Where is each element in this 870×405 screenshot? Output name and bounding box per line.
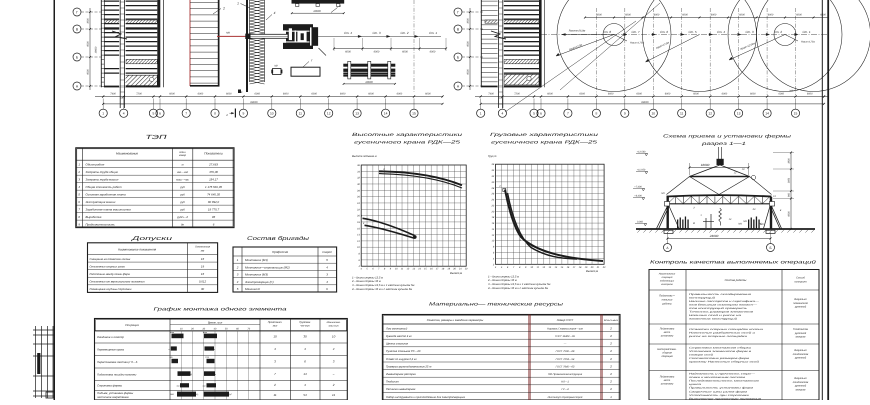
svg-text:Последовательность монтажного: Последовательность монтажного — [689, 380, 760, 383]
svg-text:Затраты труда машин: Затраты труда машин — [86, 177, 119, 181]
svg-text:Груз,т: Груз,т — [488, 155, 497, 158]
svg-text:дн: дн — [181, 223, 184, 226]
svg-text:Строповка фермы: Строповка фермы — [97, 383, 122, 387]
svg-text:тов конструкций проверить: тов конструкций проверить — [689, 307, 748, 310]
svg-text:7: 7 — [567, 112, 569, 116]
svg-text:12: 12 — [327, 112, 331, 116]
svg-text:Размещение глубины строповки: Размещение глубины строповки — [90, 288, 132, 291]
svg-text:10: 10 — [332, 335, 336, 339]
svg-text:3—длина стрелы 12,5 м и с жест: 3—длина стрелы 12,5 м и с жестким гусько… — [352, 284, 415, 287]
svg-text:12: 12 — [708, 112, 712, 116]
svg-text:Ст. 2: Ст. 2 — [401, 31, 409, 35]
svg-text:10600: 10600 — [313, 10, 321, 13]
svg-text:Установка элементов ферм в: Установка элементов ферм в — [689, 350, 752, 353]
svg-text:10: 10 — [273, 335, 277, 339]
svg-text:Основная заработная плата: Основная заработная плата — [86, 192, 126, 196]
svg-text:18000: 18000 — [95, 46, 98, 53]
svg-text:рулеткой: рулеткой — [794, 385, 807, 388]
svg-text:Грузовые характеристики: Грузовые характеристики — [490, 132, 599, 137]
svg-text:Правильность установки ферм: Правильность установки ферм — [689, 387, 754, 390]
svg-text:ТЭП: ТЭП — [146, 134, 168, 141]
svg-text:6600: 6600 — [788, 211, 791, 217]
svg-text:2: 2 — [609, 342, 612, 346]
svg-text:3600: 3600 — [467, 18, 470, 24]
svg-text:9: 9 — [624, 112, 626, 116]
svg-text:6000: 6000 — [665, 93, 671, 96]
svg-text:Выработка: Выработка — [86, 215, 102, 219]
svg-text:Институт Оргтрансстрой: Институт Оргтрансстрой — [548, 396, 583, 399]
svg-text:54: 54 — [303, 393, 307, 397]
svg-text:створе осей: створе осей — [689, 354, 714, 357]
svg-text:Rмин=4,75м: Rмин=4,75м — [630, 42, 644, 45]
svg-text:10600: 10600 — [365, 81, 373, 84]
svg-text:—: — — [563, 343, 567, 346]
svg-text:22: 22 — [464, 268, 468, 271]
svg-text:НО: НО — [759, 223, 763, 226]
svg-text:конструкций: конструкций — [689, 296, 716, 299]
svg-text:ПМ Промжелезконструкция: ПМ Промжелезконструкция — [548, 373, 583, 376]
svg-text:4: 4 — [501, 112, 503, 116]
svg-text:2: 2 — [222, 7, 225, 11]
svg-text:5: 5 — [152, 112, 154, 116]
svg-text:Электросварщик (С): Электросварщик (С) — [245, 280, 274, 284]
svg-text:руб: руб — [179, 201, 185, 204]
svg-text:Монтажник (М3): Монтажник (М3) — [245, 273, 268, 277]
svg-text:Наличие осей и рисок на: Наличие осей и рисок на — [689, 314, 742, 317]
svg-text:Материально— технические ресу: Материально— технические ресурсы — [429, 302, 564, 308]
svg-text:установки: установки — [660, 383, 674, 386]
svg-text:метром: метром — [796, 336, 806, 339]
svg-text:18000: 18000 — [701, 163, 710, 167]
svg-text:элементах конструкций: элементах конструкций — [689, 318, 738, 321]
svg-text:Строповка монтажная сборки: Строповка монтажная сборки — [689, 347, 752, 350]
svg-text:6000: 6000 — [283, 93, 289, 96]
svg-text:74 640,35: 74 640,35 — [207, 192, 220, 196]
svg-text:Визуально: Визуально — [794, 349, 807, 352]
svg-text:800: 800 — [788, 192, 791, 197]
svg-text:6000: 6000 — [430, 51, 436, 54]
svg-text:маш: маш — [170, 331, 174, 334]
svg-text:Затраты труда общие: Затраты труда общие — [86, 170, 119, 174]
svg-text:Нанесение разбивочных осей и: Нанесение разбивочных осей и — [689, 332, 756, 335]
svg-text:6000: 6000 — [345, 51, 351, 54]
svg-text:0,000: 0,000 — [637, 221, 644, 224]
svg-text:13: 13 — [355, 112, 359, 116]
svg-text:6000: 6000 — [768, 14, 774, 17]
svg-text:цикла: цикла — [689, 383, 702, 386]
svg-text:8: 8 — [214, 112, 216, 116]
svg-text:28: 28 — [356, 189, 360, 192]
svg-text:Ст. 8: Ст. 8 — [603, 30, 611, 34]
svg-text:мин: мин — [273, 325, 278, 328]
svg-text:18 770,7: 18 770,7 — [208, 207, 220, 211]
svg-text:2: 2 — [332, 383, 335, 387]
svg-text:–: – — [332, 372, 335, 376]
svg-text:6000: 6000 — [425, 93, 431, 96]
svg-text:1—длина стрелы 12,5 м: 1—длина стрелы 12,5 м — [352, 276, 383, 279]
svg-text:14: 14 — [303, 372, 307, 376]
svg-text:Расстояния между осями ферм: Расстояния между осями ферм — [90, 273, 131, 276]
svg-text:Вылет,м: Вылет,м — [586, 269, 598, 273]
svg-text:Трудоемк.: Трудоемк. — [299, 321, 311, 324]
svg-text:6000: 6000 — [711, 14, 717, 17]
svg-text:метром: метром — [796, 388, 806, 391]
svg-text:2: 2 — [609, 326, 612, 330]
svg-text:Монтажник—стропальщик (М2): Монтажник—стропальщик (М2) — [245, 265, 290, 269]
svg-text:20: 20 — [356, 215, 360, 218]
svg-text:6: 6 — [540, 112, 542, 116]
svg-text:22: 22 — [356, 208, 360, 211]
svg-text:3650: 3650 — [788, 177, 791, 183]
svg-text:измер: измер — [179, 154, 187, 157]
svg-text:руб: руб — [179, 208, 185, 211]
svg-text:24: 24 — [356, 202, 360, 205]
svg-text:83200: 83200 — [250, 101, 258, 104]
svg-text:Перестановка лестниц ГП—5: Перестановка лестниц ГП—5 — [97, 360, 138, 364]
svg-text:контроля: контроля — [795, 281, 808, 284]
svg-text:В: В — [693, 222, 695, 225]
svg-text:проекту Нанесение сборных осе: проекту Нанесение сборных осей — [689, 361, 760, 364]
svg-text:контролю: контролю — [661, 283, 673, 286]
svg-text:5: 5 — [533, 112, 535, 116]
svg-text:гусеничного крана РДК—25: гусеничного крана РДК—25 — [491, 140, 598, 145]
svg-text:9: 9 — [242, 112, 244, 116]
svg-text:6000: 6000 — [693, 93, 699, 96]
svg-text:8: 8 — [595, 112, 597, 116]
svg-text:6000: 6000 — [87, 69, 90, 75]
svg-text:маш: маш — [203, 331, 207, 334]
svg-text:7: 7 — [185, 112, 187, 116]
svg-text:рисок на опорные площадки: рисок на опорные площадки — [687, 335, 748, 338]
svg-text:ГОСТ 7945—63: ГОСТ 7945—63 — [556, 365, 575, 368]
svg-text:95: 95 — [212, 215, 216, 219]
svg-text:Подготовь—: Подготовь— — [659, 295, 675, 298]
svg-text:Оснастка, размеры и заводск: Оснастка, размеры и заводские параметры — [427, 319, 484, 322]
svg-text:1: 1 — [237, 2, 239, 6]
svg-text:маш·мин: маш·мин — [329, 325, 340, 328]
svg-text:Инвентарная распорка: Инвентарная распорка — [386, 373, 416, 376]
svg-text:теодолитом: теодолитом — [793, 381, 809, 384]
svg-text:6000: 6000 — [397, 93, 403, 96]
svg-text:2—длина стрелы 35 м: 2—длина стрелы 35 м — [351, 280, 381, 283]
svg-text:Наименование: Наименование — [116, 152, 138, 156]
svg-text:6000: 6000 — [636, 93, 642, 96]
svg-text:м: м — [182, 164, 184, 167]
svg-text:Теодолит: Теодолит — [386, 381, 399, 384]
svg-text:6000: 6000 — [579, 93, 585, 96]
svg-text:2: 2 — [273, 383, 276, 387]
svg-text:6000: 6000 — [255, 93, 261, 96]
svg-text:6000: 6000 — [739, 14, 745, 17]
svg-text:Кол-во: Кол-во — [604, 319, 619, 322]
svg-text:Наименование показателя: Наименование показателя — [118, 248, 157, 252]
svg-text:График монтажа одного элемента: График монтажа одного элемента — [154, 307, 288, 313]
svg-text:+11,050: +11,050 — [637, 169, 646, 172]
svg-text:19: 19 — [201, 264, 205, 268]
svg-text:Набор инструмента и приспособл: Набор инструмента и приспособления для э… — [386, 396, 465, 399]
svg-text:Правильность складирования: Правильность складирования — [689, 293, 752, 296]
svg-text:Разряд: Разряд — [322, 250, 332, 254]
svg-text:Продолжительность: Продолжительность — [86, 222, 116, 226]
svg-text:6000: 6000 — [311, 93, 317, 96]
svg-text:Состав работы: Состав работы — [725, 278, 747, 282]
svg-text:6000: 6000 — [625, 14, 631, 17]
svg-text:1: 1 — [480, 112, 482, 116]
svg-text:установки: установки — [660, 335, 674, 338]
svg-text:Визуально: Визуально — [794, 298, 807, 301]
svg-text:3800: 3800 — [788, 158, 791, 164]
svg-text:Кувалда массой 4 кг: Кувалда массой 4 кг — [386, 335, 412, 338]
svg-text:2: 2 — [609, 380, 612, 384]
svg-text:М₂: М₂ — [196, 393, 199, 396]
svg-text:рулеткой: рулеткой — [794, 332, 807, 335]
svg-text:Высота подъема м: Высота подъема м — [352, 155, 377, 158]
svg-text:Допуски: Допуски — [130, 236, 172, 242]
svg-text:Точность размеров элементов: Точность размеров элементов — [689, 311, 754, 314]
svg-text:15: 15 — [412, 112, 416, 116]
svg-text:гусеничного крана РДК—25: гусеничного крана РДК—25 — [354, 140, 461, 145]
svg-text:3600: 3600 — [87, 18, 90, 24]
svg-text:154,17: 154,17 — [209, 177, 218, 181]
svg-text:470,08: 470,08 — [209, 170, 218, 174]
svg-text:Общая стоимость работ: Общая стоимость работ — [86, 185, 123, 189]
svg-text:6000: 6000 — [682, 14, 688, 17]
svg-text:2: 2 — [609, 357, 612, 361]
svg-text:6000: 6000 — [820, 14, 826, 17]
svg-text:26: 26 — [356, 196, 360, 199]
svg-text:2: 2 — [77, 170, 80, 174]
svg-text:ГОСТ 7253—54: ГОСТ 7253—54 — [556, 358, 575, 361]
svg-text:Показатели: Показатели — [204, 152, 223, 156]
svg-text:Монтажник (М1): Монтажник (М1) — [245, 258, 268, 262]
svg-text:Отклонения опорных узлов: Отклонения опорных узлов — [90, 265, 126, 268]
svg-text:тов Внешним осмотром элемен—: тов Внешним осмотром элемен— — [689, 303, 758, 306]
svg-text:Контроль качества выполняемых: Контроль качества выполняемых операций — [650, 260, 817, 266]
svg-text:14: 14 — [384, 112, 388, 116]
svg-text:Ст. 5: Ст. 5 — [689, 30, 697, 34]
svg-text:Нормаль Главмосстроя—шт: Нормаль Главмосстроя—шт — [547, 327, 584, 330]
svg-text:2: 2 — [609, 349, 612, 353]
svg-text:1—длина стрелы 12,5 м: 1—длина стрелы 12,5 м — [488, 275, 519, 278]
svg-text:6: 6 — [159, 112, 161, 116]
svg-text:15: 15 — [794, 112, 798, 116]
svg-text:11: 11 — [680, 112, 684, 116]
svg-text:тельные: тельные — [662, 299, 673, 302]
svg-text:Операция: Операция — [125, 323, 139, 327]
svg-text:ГОСТ 7502—69: ГОСТ 7502—69 — [556, 350, 575, 353]
svg-text:2: 2 — [236, 265, 239, 269]
svg-text:Расчалка инвентарная: Расчалка инвентарная — [386, 388, 416, 391]
svg-text:Схема приема и установки фермы: Схема приема и установки фермы — [663, 134, 792, 139]
svg-text:Продолжит.: Продолжит. — [268, 321, 283, 324]
svg-text:7200: 7200 — [514, 93, 520, 96]
svg-text:3—длина стрелы 12,5 м и с жест: 3—длина стрелы 12,5 м и с жестким гусько… — [488, 283, 551, 286]
svg-text:руб/ч—д: руб/ч—д — [176, 216, 188, 219]
svg-text:27,663: 27,663 — [208, 163, 218, 167]
svg-text:рулеткой: рулеткой — [794, 306, 807, 309]
svg-text:Ст. 6: Ст. 6 — [660, 30, 668, 34]
svg-text:4—длина стрелы 35 м и с жестки: 4—длина стрелы 35 м и с жестким гуськом … — [352, 288, 412, 291]
svg-text:чел—час: чел—час — [177, 171, 189, 174]
svg-text:руб: руб — [179, 193, 185, 196]
svg-text:+12,560: +12,560 — [637, 151, 646, 154]
svg-text:Перемещение крана: Перемещение крана — [97, 347, 124, 351]
svg-text:6000: 6000 — [750, 93, 756, 96]
svg-text:6000: 6000 — [87, 41, 90, 47]
svg-text:6000: 6000 — [722, 93, 728, 96]
svg-text:6000: 6000 — [198, 93, 204, 96]
svg-text:НЛ—1: НЛ—1 — [561, 381, 569, 384]
svg-text:ММ: ММ — [170, 393, 174, 396]
svg-text:Соответствие размеров ферм: Соответствие размеров ферм — [689, 357, 750, 360]
svg-text:4: 4 — [123, 112, 125, 116]
svg-text:4—длина стрелы 35 м и с жестки: 4—длина стрелы 35 м и с жестким гуськом … — [488, 287, 548, 290]
svg-text:Время, мин: Время, мин — [208, 321, 223, 324]
svg-text:Б: Б — [769, 246, 771, 250]
svg-text:частичное закрепление: частичное закрепление — [97, 395, 129, 399]
svg-text:Отвес со шнуром 0,2 кг: Отвес со шнуром 0,2 кг — [386, 358, 417, 361]
svg-text:+7,400: +7,400 — [634, 186, 642, 189]
svg-text:6000: 6000 — [374, 51, 380, 54]
svg-text:15: 15 — [201, 257, 205, 261]
svg-text:2: 2 — [609, 334, 612, 338]
svg-text:6000: 6000 — [402, 51, 408, 54]
svg-text:+6,400: +6,400 — [634, 195, 642, 198]
svg-text:14: 14 — [765, 112, 769, 116]
svg-text:Визуально: Визуально — [794, 377, 807, 380]
svg-text:2: 2 — [609, 387, 612, 391]
svg-text:повки к монтажным петлям: повки к монтажным петлям — [689, 376, 746, 379]
svg-text:4: 4 — [274, 11, 276, 15]
svg-text:0,012: 0,012 — [199, 280, 207, 284]
svg-text:7200: 7200 — [136, 93, 142, 96]
svg-text:Объем работ: Объем работ — [86, 163, 105, 167]
svg-text:элементной: элементной — [793, 302, 808, 305]
svg-text:6000: 6000 — [340, 93, 346, 96]
svg-text:Ст. 4: Ст. 4 — [344, 31, 352, 35]
svg-text:1 175 581,35: 1 175 581,35 — [205, 185, 222, 189]
svg-text:Г: Г — [76, 10, 78, 14]
svg-text:Способ: Способ — [796, 277, 805, 280]
svg-text:Ст. 3: Ст. 3 — [373, 31, 381, 35]
svg-text:11: 11 — [273, 393, 276, 397]
svg-text:2—длина стрелы 35 м: 2—длина стрелы 35 м — [487, 279, 517, 282]
svg-text:Устойчивость при строповке: Устойчивость при строповке — [689, 394, 750, 397]
svg-text:Эксплуатация машин: Эксплуатация машин — [86, 200, 116, 204]
svg-text:Отметки опорных площадок колон: Отметки опорных площадок колонн — [689, 328, 764, 331]
svg-text:мм: мм — [201, 250, 205, 253]
svg-text:Состав бригады: Состав бригады — [247, 236, 309, 242]
svg-text:рулеткой: рулеткой — [794, 357, 807, 360]
svg-text:М₁: М₁ — [190, 373, 193, 376]
svg-text:6000: 6000 — [169, 93, 175, 96]
svg-text:Ожидание и осмотр: Ожидание и осмотр — [97, 335, 124, 339]
svg-text:Машинист: Машинист — [245, 287, 261, 291]
svg-text:83200: 83200 — [641, 101, 649, 104]
svg-text:Траверса грузоподъемностью 25: Траверса грузоподъемностью 25 т — [386, 365, 432, 368]
svg-text:Rмин=4,75м: Rмин=4,75м — [801, 41, 815, 44]
svg-text:Сварочные швы узлов ферм: Сварочные швы узлов ферм — [689, 390, 748, 393]
svg-text:1: 1 — [102, 112, 104, 116]
svg-text:Вылет,м: Вылет,м — [450, 271, 462, 275]
svg-text:Заработная плата машинистов: Заработная плата машинистов — [86, 207, 132, 211]
svg-text:15: 15 — [201, 272, 205, 276]
svg-text:руб: руб — [179, 186, 185, 189]
svg-text:24000: 24000 — [709, 234, 719, 238]
svg-text:Отклонения: Отклонения — [195, 246, 211, 249]
svg-text:6000: 6000 — [547, 93, 553, 96]
svg-text:300: 300 — [789, 90, 794, 93]
svg-text:11: 11 — [299, 112, 303, 116]
svg-text:Ст. 4: Ст. 4 — [717, 30, 725, 34]
svg-text:теодолитом: теодолитом — [793, 353, 809, 356]
svg-text:2: 2 — [609, 364, 612, 368]
svg-text:6000: 6000 — [608, 93, 614, 96]
svg-text:7400: 7400 — [488, 93, 494, 96]
svg-text:Rмонт=26,8м: Rмонт=26,8м — [569, 30, 586, 33]
svg-text:30: 30 — [201, 287, 205, 291]
svg-text:6000: 6000 — [596, 14, 602, 17]
svg-text:Отклонения от вертикального по: Отклонения от вертикального положения — [90, 281, 146, 284]
svg-text:М₂С: М₂С — [228, 393, 232, 396]
svg-text:10: 10 — [270, 112, 274, 116]
svg-text:6000: 6000 — [779, 93, 785, 96]
svg-text:Профессия: Профессия — [272, 250, 288, 254]
svg-text:Щетка стальная: Щетка стальная — [386, 343, 409, 346]
svg-text:Надежность и прочность стро—: Надежность и прочность стро— — [689, 373, 756, 376]
svg-text:Г: Г — [457, 10, 459, 14]
svg-text:Машиноемк.: Машиноемк. — [327, 321, 341, 324]
svg-text:Теодолитом: Теодолитом — [793, 328, 808, 331]
svg-text:11: 11 — [332, 393, 335, 397]
svg-text:Ст. 7: Ст. 7 — [632, 30, 640, 34]
svg-text:Ст. 1: Ст. 1 — [803, 30, 811, 34]
svg-text:7400: 7400 — [110, 93, 116, 96]
svg-text:Подготовка посадки колонны: Подготовка посадки колонны — [97, 372, 136, 376]
svg-text:80 892,0: 80 892,0 — [208, 200, 220, 204]
svg-text:13: 13 — [737, 112, 741, 116]
svg-text:разрез 1—1: разрез 1—1 — [700, 141, 746, 146]
svg-text:6000: 6000 — [467, 41, 470, 47]
svg-text:6000: 6000 — [226, 93, 232, 96]
svg-text:6000: 6000 — [807, 93, 813, 96]
svg-text:6000: 6000 — [467, 69, 470, 75]
svg-text:Ст. 2: Ст. 2 — [774, 30, 782, 34]
svg-text:МВ: МВ — [226, 32, 230, 35]
svg-text:ГОСТ 11402—65: ГОСТ 11402—65 — [555, 335, 575, 338]
svg-text:2: 2 — [609, 372, 612, 376]
svg-text:работы: работы — [661, 303, 672, 306]
svg-text:ГУ—4: ГУ—4 — [561, 388, 569, 391]
svg-text:Смещение на отметках колонн: Смещение на отметках колонн — [90, 258, 131, 261]
svg-text:30: 30 — [303, 335, 307, 339]
svg-text:операция: операция — [661, 355, 673, 358]
svg-text:10: 10 — [651, 112, 655, 116]
svg-text:Рулетка стальная РС—20: Рулетка стальная РС—20 — [386, 350, 421, 353]
svg-text:Наличие паспортов и сертифика—: Наличие паспортов и сертифика— — [689, 300, 760, 303]
svg-text:Номер ГОСТ: Номер ГОСТ — [557, 318, 574, 322]
svg-text:6000: 6000 — [368, 93, 374, 96]
svg-text:чел·мин: чел·мин — [300, 325, 310, 328]
svg-text:Высотные характеристики: Высотные характеристики — [352, 132, 463, 137]
svg-text:Лом монтажный: Лом монтажный — [385, 327, 408, 330]
svg-text:6000: 6000 — [654, 14, 660, 17]
svg-text:Ст. 1: Ст. 1 — [429, 31, 437, 35]
svg-text:6000: 6000 — [796, 14, 802, 17]
svg-text:Ст. 3: Ст. 3 — [746, 30, 754, 34]
svg-text:маш—час: маш—час — [176, 178, 189, 181]
